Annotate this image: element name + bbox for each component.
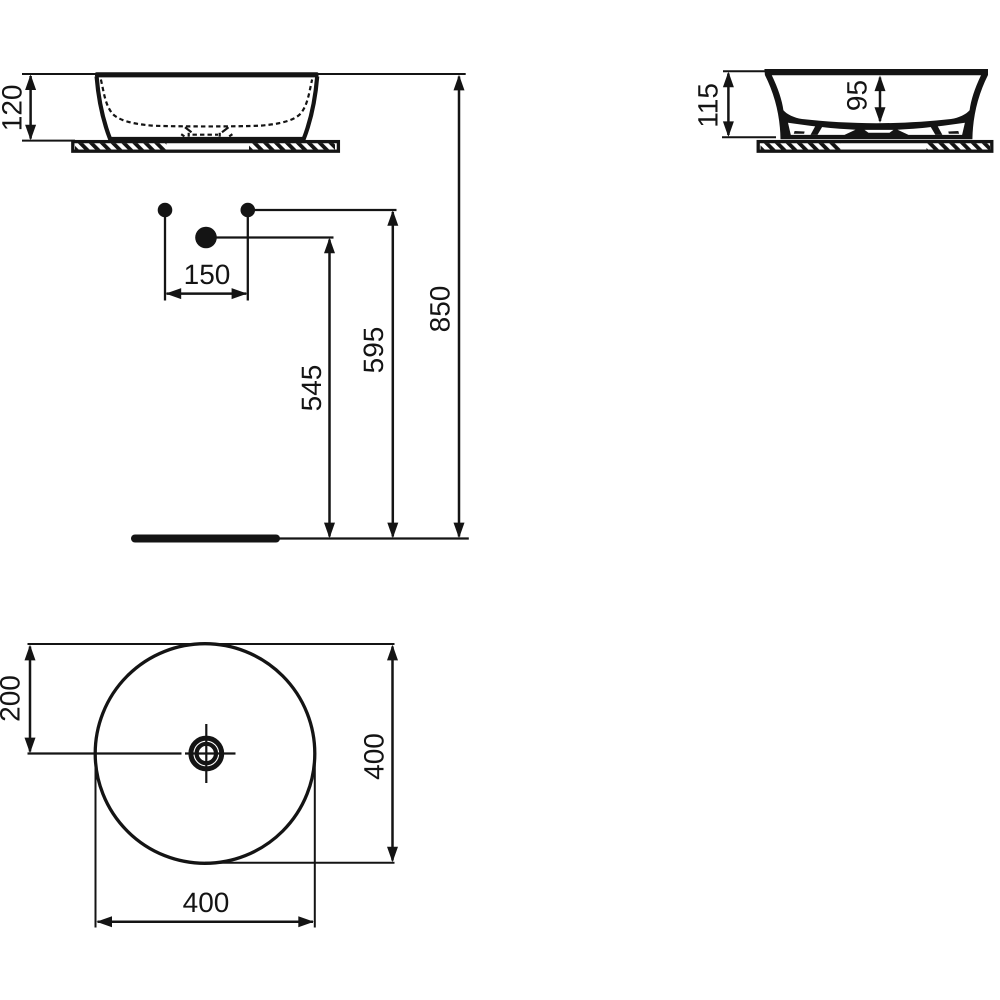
- svg-text:95: 95: [842, 80, 873, 111]
- svg-text:200: 200: [0, 675, 26, 722]
- svg-text:120: 120: [0, 85, 27, 132]
- svg-text:595: 595: [358, 327, 389, 374]
- svg-text:400: 400: [359, 733, 390, 780]
- svg-text:150: 150: [184, 259, 231, 290]
- svg-text:115: 115: [693, 83, 724, 128]
- svg-text:850: 850: [425, 286, 456, 333]
- svg-text:400: 400: [183, 887, 230, 918]
- svg-text:545: 545: [296, 365, 327, 412]
